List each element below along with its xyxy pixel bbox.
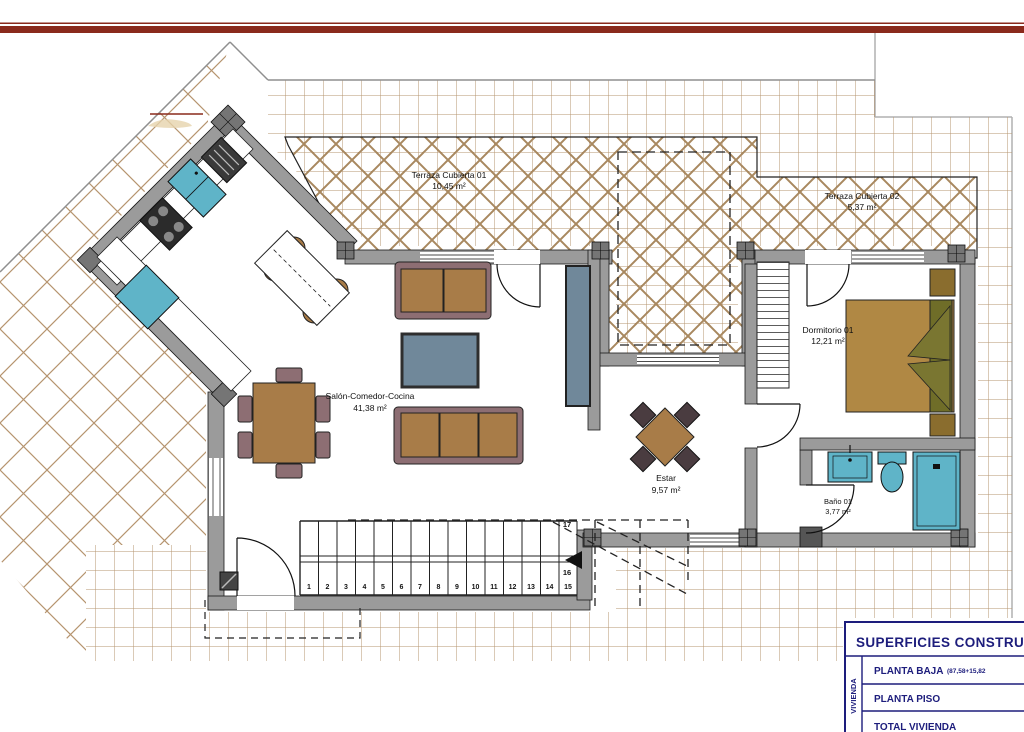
label-terraza2-name: Terraza Cubierta 02	[825, 191, 900, 201]
svg-text:8: 8	[437, 584, 441, 591]
svg-text:11: 11	[490, 584, 498, 591]
nightstand-bottom	[930, 414, 955, 436]
bed	[846, 300, 954, 412]
title-block-note-planta-baja: (87,58+15,82	[947, 668, 986, 675]
top-red-rules	[0, 23, 1024, 34]
title-block-side-label: VIVIENDA	[849, 678, 858, 714]
title-block-row-planta-piso: PLANTA PISO	[874, 694, 940, 705]
svg-text:4: 4	[363, 584, 367, 591]
svg-text:1: 1	[307, 584, 311, 591]
wardrobe	[757, 262, 789, 388]
svg-text:12: 12	[509, 584, 517, 591]
title-block-row-planta-baja: PLANTA BAJA	[874, 666, 943, 677]
sideboard	[566, 266, 590, 406]
sofa-two-seat	[395, 262, 491, 319]
svg-text:5: 5	[381, 584, 385, 591]
title-block-row-total-vivienda: TOTAL VIVIENDA	[874, 722, 956, 732]
entry-closet	[220, 572, 238, 590]
svg-text:10: 10	[472, 584, 480, 591]
title-block-header: SUPERFICIES CONSTRUID	[856, 635, 1024, 650]
sofa-three-seat	[394, 407, 523, 464]
svg-text:13: 13	[527, 584, 535, 591]
coffee-table	[402, 334, 478, 387]
label-estar-name: Estar	[656, 473, 676, 483]
svg-text:7: 7	[418, 584, 422, 591]
svg-text:2: 2	[326, 584, 330, 591]
label-dormitorio-area: 12,21 m²	[811, 336, 845, 346]
label-bano-name: Baño 01	[824, 497, 852, 506]
floor-plan-sheet: Terraza Cubierta 01 10,45 m² Terraza Cub…	[0, 0, 1024, 732]
estar-table-set	[630, 402, 699, 471]
svg-text:6: 6	[400, 584, 404, 591]
label-dormitorio-name: Dormitorio 01	[802, 325, 853, 335]
label-terraza2-area: 5,37 m²	[848, 202, 877, 212]
svg-text:15: 15	[564, 584, 572, 591]
bath-door-pier	[800, 527, 822, 547]
label-bano-area: 3,77 m²	[825, 507, 851, 516]
label-estar-area: 9,57 m²	[652, 485, 681, 495]
label-salon-area: 41,38 m²	[353, 403, 387, 413]
stair-mark-17: 17	[563, 520, 571, 529]
label-salon-name: Salón-Comedor-Cocina	[326, 391, 415, 401]
nightstand-top	[930, 269, 955, 296]
floor-plan-drawing: Terraza Cubierta 01 10,45 m² Terraza Cub…	[0, 0, 1024, 732]
shower	[913, 452, 960, 530]
stair-mark-16: 16	[563, 568, 571, 577]
label-terraza1-area: 10,45 m²	[432, 181, 466, 191]
svg-text:3: 3	[344, 584, 348, 591]
title-block: SUPERFICIES CONSTRUID VIVIENDA PLANTA BA…	[845, 622, 1024, 732]
svg-text:9: 9	[455, 584, 459, 591]
svg-text:14: 14	[546, 584, 554, 591]
label-terraza1-name: Terraza Cubierta 01	[412, 170, 487, 180]
